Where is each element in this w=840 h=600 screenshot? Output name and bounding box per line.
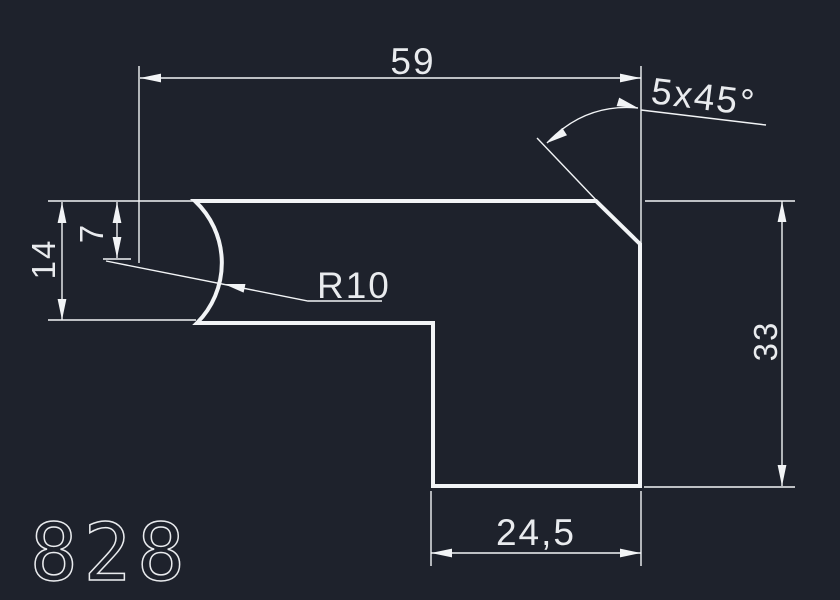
dim-label-14: 14 xyxy=(25,239,62,280)
dim-label-33: 33 xyxy=(747,321,784,362)
part-number-label: 828 xyxy=(30,507,191,599)
dim-label-245: 24,5 xyxy=(496,512,576,553)
radius-label: R10 xyxy=(317,265,391,306)
dim-label-59: 59 xyxy=(390,41,435,82)
dim-label-7: 7 xyxy=(73,223,110,243)
cad-drawing-canvas: 59 5x45° 7 14 R10 33 24,5 828 xyxy=(0,0,840,600)
